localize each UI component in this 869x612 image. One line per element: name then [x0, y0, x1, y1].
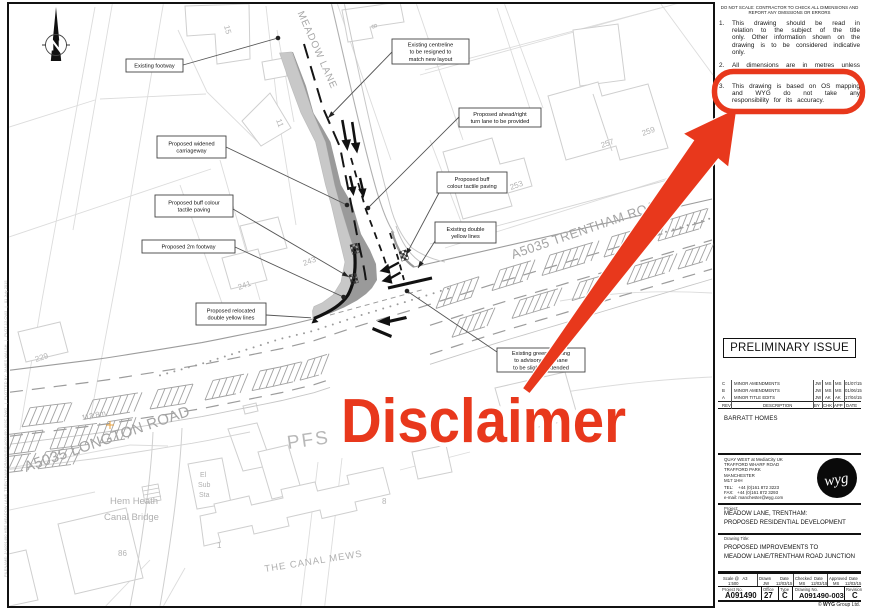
svg-text:wyg: wyg: [823, 470, 850, 489]
